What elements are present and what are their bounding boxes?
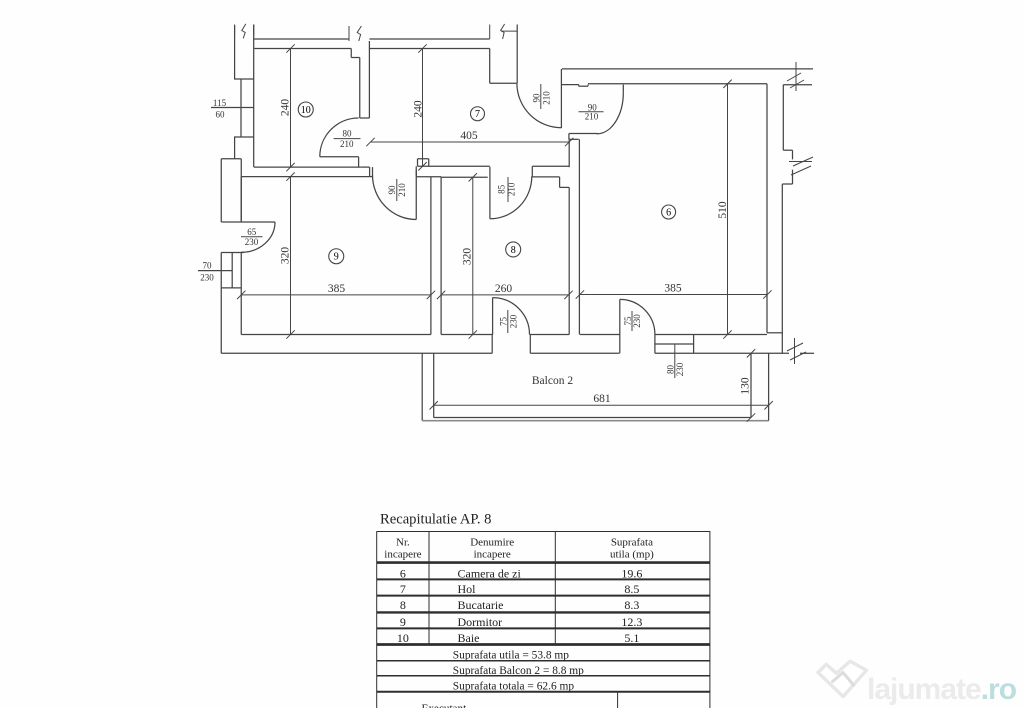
svg-text:incapere: incapere [384,549,421,561]
svg-text:Baie: Baie [458,631,480,645]
svg-text:7: 7 [400,582,406,596]
svg-text:681: 681 [593,393,611,405]
svg-text:230: 230 [200,273,214,283]
svg-text:Executant: Executant [422,703,468,708]
svg-text:9: 9 [400,615,406,629]
svg-text:90: 90 [387,185,397,195]
svg-text:Recapitulatie AP. 8: Recapitulatie AP. 8 [380,511,491,527]
svg-text:5.1: 5.1 [624,631,639,645]
svg-text:Suprafata Balcon 2 = 8.8 mp: Suprafata Balcon 2 = 8.8 mp [453,665,584,677]
svg-text:6: 6 [400,567,406,581]
svg-text:Suprafata totala = 62.6 mp: Suprafata totala = 62.6 mp [453,680,575,692]
svg-text:7: 7 [475,109,480,120]
svg-text:8: 8 [511,245,516,256]
svg-text:12.3: 12.3 [621,615,642,629]
svg-text:230: 230 [675,362,685,376]
svg-text:240: 240 [412,100,424,118]
svg-text:9: 9 [334,252,339,263]
svg-text:8: 8 [400,598,406,612]
svg-text:Nr.: Nr. [396,537,410,549]
svg-text:Suprafata: Suprafata [611,537,653,549]
svg-text:210: 210 [506,182,516,196]
svg-text:Bucatarie: Bucatarie [458,598,504,612]
svg-text:19.6: 19.6 [621,567,642,581]
svg-text:80: 80 [666,365,676,375]
svg-text:90: 90 [531,93,541,103]
svg-text:240: 240 [280,99,292,117]
svg-text:210: 210 [397,183,407,197]
svg-text:320: 320 [280,247,292,265]
svg-text:85: 85 [496,184,506,194]
svg-text:10: 10 [397,631,409,645]
svg-text:Camera de zi: Camera de zi [458,567,522,581]
svg-text:utila (mp): utila (mp) [610,549,654,561]
svg-text:210: 210 [585,112,599,122]
svg-text:130: 130 [740,377,752,395]
svg-text:10: 10 [301,105,311,116]
svg-text:405: 405 [460,130,478,142]
svg-text:8.3: 8.3 [624,598,639,612]
svg-text:Suprafata utila = 53.8 mp: Suprafata utila = 53.8 mp [453,650,569,662]
svg-text:Dormitor: Dormitor [458,615,503,629]
svg-text:510: 510 [717,201,729,219]
svg-text:385: 385 [328,283,346,295]
svg-text:Denumire: Denumire [470,537,514,549]
svg-text:230: 230 [508,314,518,328]
svg-text:Balcon 2: Balcon 2 [532,375,573,387]
svg-text:80: 80 [343,129,353,139]
svg-text:210: 210 [340,139,354,149]
svg-text:Hol: Hol [458,582,477,596]
svg-text:60: 60 [216,110,226,120]
svg-text:260: 260 [495,283,513,295]
svg-text:75: 75 [499,316,509,326]
svg-text:70: 70 [203,261,213,271]
svg-text:lajumate.ro: lajumate.ro [867,673,1017,706]
svg-text:8.5: 8.5 [624,582,639,596]
svg-text:incapere: incapere [474,549,511,561]
svg-text:385: 385 [664,283,682,295]
svg-text:320: 320 [462,248,474,266]
svg-text:65: 65 [247,227,257,237]
svg-text:230: 230 [632,314,642,328]
svg-text:210: 210 [542,91,552,105]
svg-text:6: 6 [666,207,671,218]
svg-text:115: 115 [213,98,227,108]
svg-text:230: 230 [245,237,259,247]
